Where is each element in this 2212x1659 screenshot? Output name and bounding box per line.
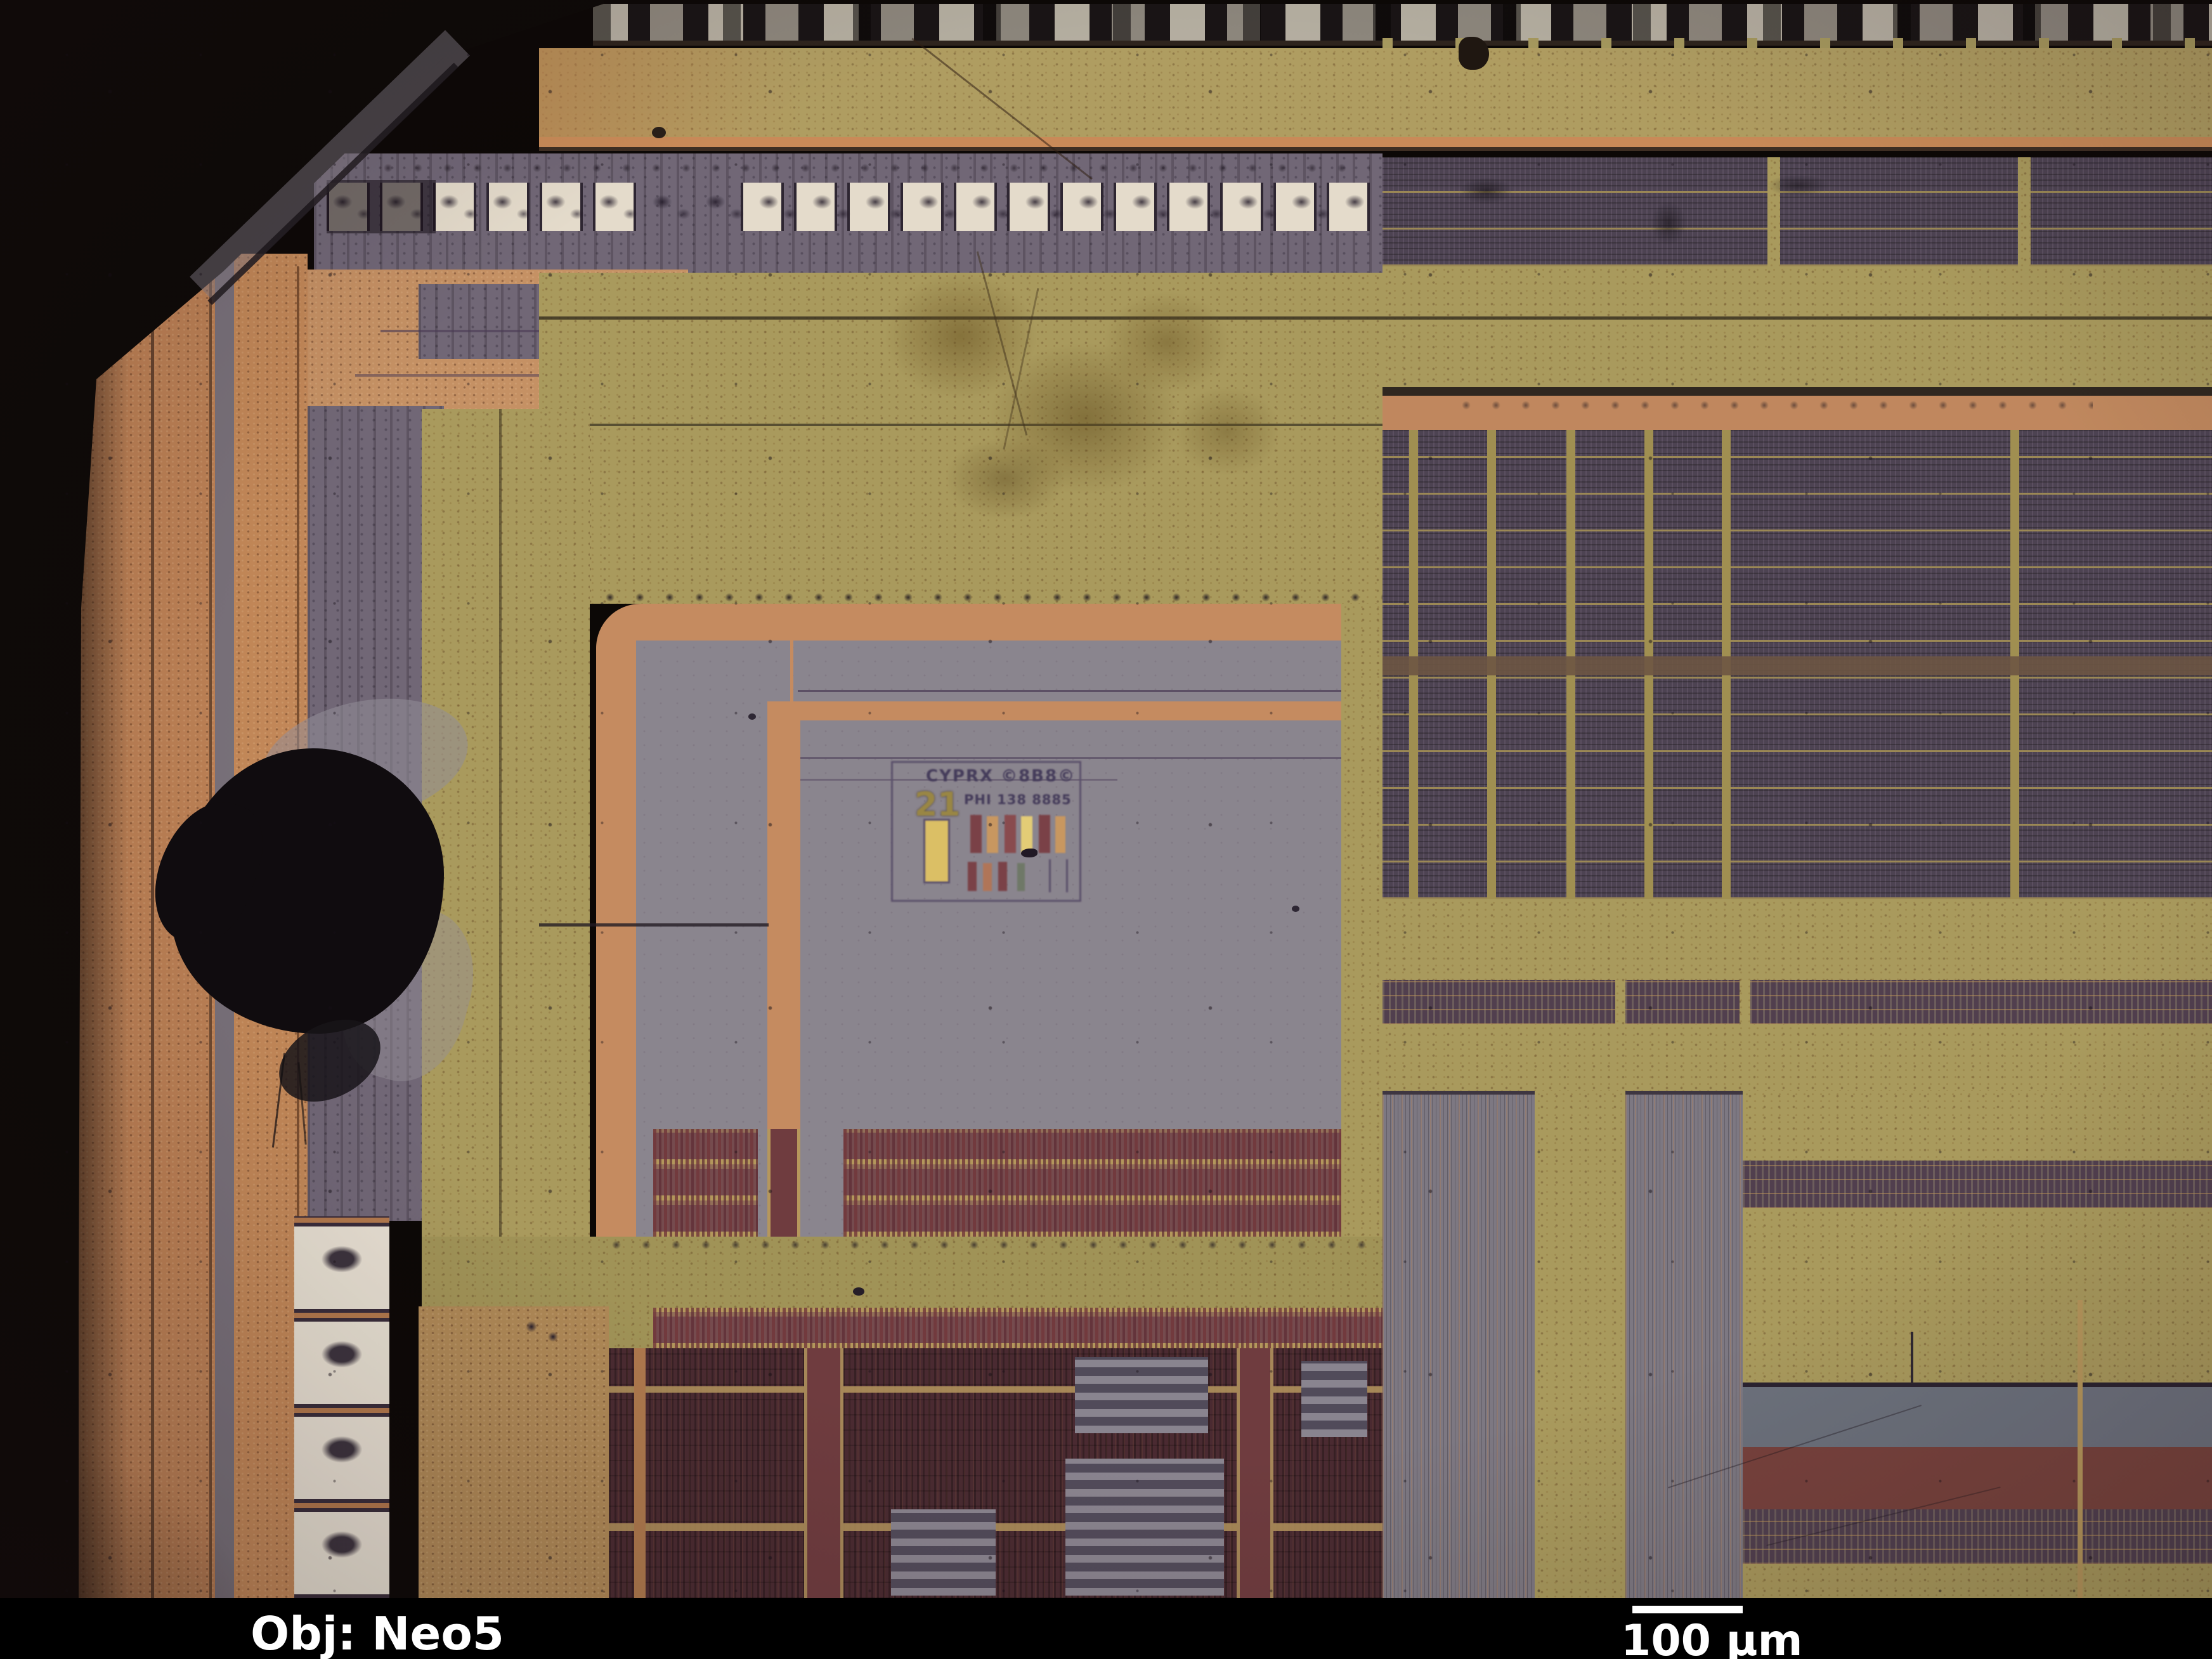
die-photo: CYPRX ©8B8© 21 PHI 138 8885 [0,0,2212,1659]
scale-bar-label: 100 µm [1621,1616,1803,1659]
info-bar: Obj: Neo5 100 µm [0,1598,2212,1659]
warm-cast [0,0,2212,1659]
objective-label: Obj: Neo5 [250,1607,504,1659]
scale-bar [1632,1606,1743,1613]
microscope-capture: CYPRX ©8B8© 21 PHI 138 8885 [0,0,2212,1659]
